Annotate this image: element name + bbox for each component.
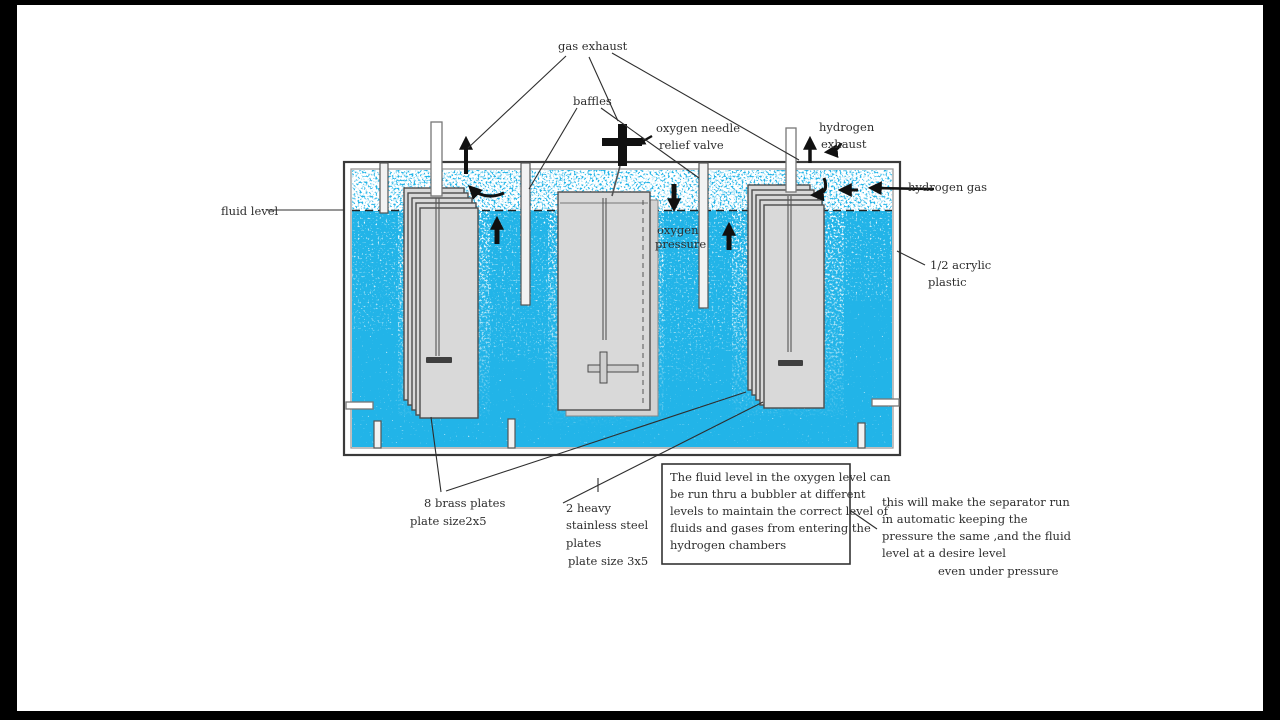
label-acrylic: 1/2 acrylic (930, 258, 991, 272)
note-line: be run thru a bubbler at different (670, 487, 866, 501)
label-steel-plates: 2 heavy (566, 501, 612, 515)
center-plate (558, 166, 658, 416)
note-line: fluids and gases from entering the (670, 521, 871, 535)
minus-terminal-bar (778, 360, 803, 366)
exhaust-pipe-right (786, 128, 796, 192)
baffle-left (521, 163, 530, 305)
label-hydrogen-gas: hydrogen gas (908, 180, 987, 194)
right-plate-stack (748, 185, 824, 408)
side-note-line: level at a desire level (882, 546, 1006, 560)
label-hydrogen-exhaust: exhaust (821, 137, 867, 151)
note-line: The fluid level in the oxygen level can (670, 470, 891, 484)
plate (764, 205, 824, 408)
left-plate-stack (404, 188, 478, 418)
plus-terminal (588, 365, 638, 372)
label-oxygen-needle: oxygen needle (656, 121, 740, 135)
label-fluid-level: fluid level (221, 204, 279, 218)
bottom-post (508, 419, 515, 448)
feed-tube-left (380, 163, 388, 213)
wall-tab-right (872, 399, 899, 406)
label-acrylic: plastic (928, 275, 967, 289)
label-oxygen-pressure: oxygen (657, 223, 699, 237)
side-note-line: this will make the separator run (882, 495, 1070, 509)
bottom-post (374, 421, 381, 448)
label-steel-plates: plates (566, 536, 601, 550)
minus-terminal-bar (426, 357, 452, 363)
label-brass-plate-size: plate size2x5 (410, 514, 487, 528)
video-frame: gas exhaust baffles oxygen needle relief… (0, 0, 1280, 720)
note-line: levels to maintain the correct level of (670, 504, 889, 518)
label-hydrogen-exhaust: hydrogen (819, 120, 875, 134)
side-note-line: in automatic keeping the (882, 512, 1028, 526)
label-steel-plate-size: plate size 3x5 (568, 554, 648, 568)
plus-terminal (600, 352, 607, 383)
label-baffles: baffles (573, 94, 612, 108)
separator-diagram: gas exhaust baffles oxygen needle relief… (0, 0, 1280, 720)
note-line: hydrogen chambers (670, 538, 786, 552)
bubble-plume (842, 211, 892, 301)
exhaust-pipe-left (431, 122, 442, 196)
label-brass-plates: 8 brass plates (424, 496, 505, 510)
bottom-post (858, 423, 865, 448)
side-note-line: pressure the same ,and the fluid (882, 529, 1072, 543)
label-relief-valve: relief valve (659, 138, 724, 152)
label-gas-exhaust: gas exhaust (558, 39, 628, 53)
side-note-line: even under pressure (938, 564, 1059, 578)
wall-tab-left (346, 402, 373, 409)
label-oxygen-pressure: pressure (655, 237, 706, 251)
label-steel-plates: stainless steel (566, 518, 649, 532)
baffle-right (699, 163, 708, 308)
plate (420, 208, 478, 418)
